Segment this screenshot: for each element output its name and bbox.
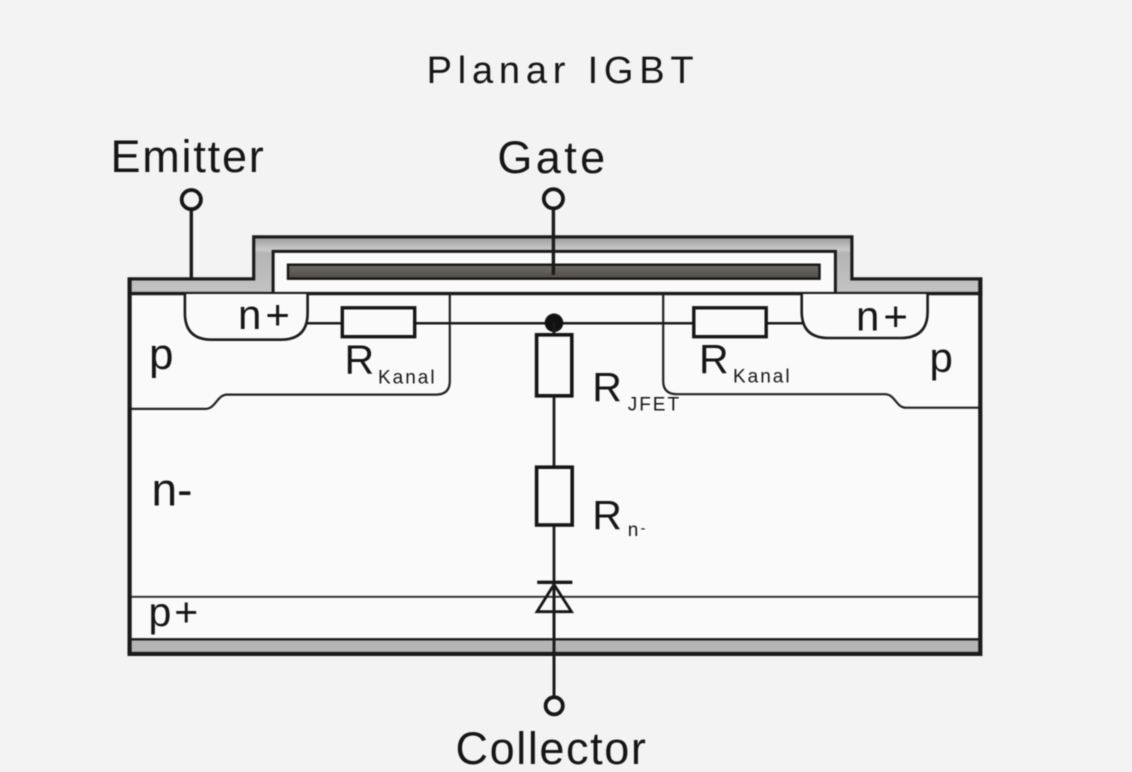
svg-text:Emitter: Emitter [110,131,265,182]
svg-text:p: p [149,330,173,379]
svg-text:n+: n+ [856,293,912,340]
svg-text:n-: n- [152,464,193,516]
svg-text:R: R [699,336,729,382]
svg-text:R: R [345,336,375,382]
svg-text:n+: n+ [238,291,294,338]
svg-text:-: - [641,520,646,537]
svg-text:R: R [592,492,622,538]
svg-text:Kanal: Kanal [733,367,792,388]
svg-text:R: R [592,364,622,410]
svg-text:JFET: JFET [628,395,681,416]
svg-text:n: n [628,520,639,541]
svg-text:Kanal: Kanal [378,367,437,388]
svg-text:p+: p+ [149,589,202,635]
svg-text:p: p [930,334,953,381]
svg-text:Collector: Collector [456,723,648,772]
svg-text:Planar IGBT: Planar IGBT [427,50,700,92]
svg-text:Gate: Gate [497,132,608,183]
